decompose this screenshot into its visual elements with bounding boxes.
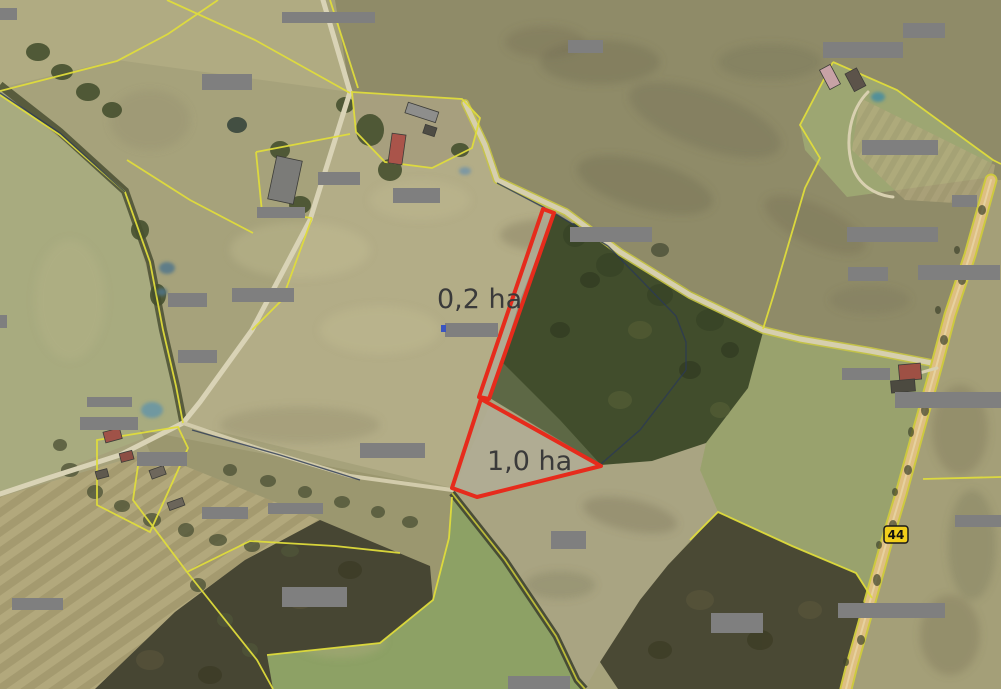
map-canvas[interactable]: 0,2 ha 1,0 ha 44 [0, 0, 1001, 689]
redaction-box [568, 40, 603, 53]
redaction-box [848, 267, 888, 281]
map-viewport[interactable]: 0,2 ha 1,0 ha 44 [0, 0, 1001, 689]
pond [159, 262, 175, 274]
redaction-box [282, 12, 375, 23]
pond [871, 92, 885, 102]
redaction-box [137, 452, 187, 466]
road-number-badge: 44 [884, 526, 908, 543]
redaction-box [268, 503, 323, 514]
redaction-box [168, 293, 207, 307]
redaction-box [862, 140, 938, 155]
redaction-box [202, 74, 252, 90]
redaction-box [551, 531, 586, 549]
pond [459, 167, 471, 175]
redaction-box [360, 443, 425, 458]
redaction-box [232, 288, 294, 302]
redaction-box [80, 417, 138, 430]
redaction-box [282, 587, 347, 607]
redaction-box [918, 265, 1000, 280]
redaction-box [0, 315, 7, 328]
redaction-box [12, 598, 63, 610]
redaction-box [202, 507, 248, 519]
redaction-box [895, 392, 1001, 408]
redaction-box [838, 603, 945, 618]
redaction-box [823, 42, 903, 58]
redaction-box [178, 350, 217, 363]
redaction-box [955, 515, 1001, 527]
redaction-box [393, 188, 440, 203]
redaction-box [842, 368, 890, 380]
pond [157, 288, 167, 296]
redaction-box [711, 613, 763, 633]
redaction-box [318, 172, 360, 185]
redaction-box [87, 397, 132, 407]
area-label-0-2-ha: 0,2 ha [437, 284, 522, 315]
redaction-box [445, 323, 498, 337]
redaction-box [847, 227, 938, 242]
redaction-box [508, 676, 570, 689]
pond [141, 402, 163, 418]
redaction-box [903, 23, 945, 38]
marker-dot [441, 325, 446, 332]
area-label-1-0-ha: 1,0 ha [487, 446, 572, 477]
redaction-box [570, 227, 652, 242]
redaction-box [952, 195, 977, 207]
redaction-box [0, 8, 17, 20]
svg-text:44: 44 [888, 528, 905, 542]
redaction-box [257, 207, 305, 218]
